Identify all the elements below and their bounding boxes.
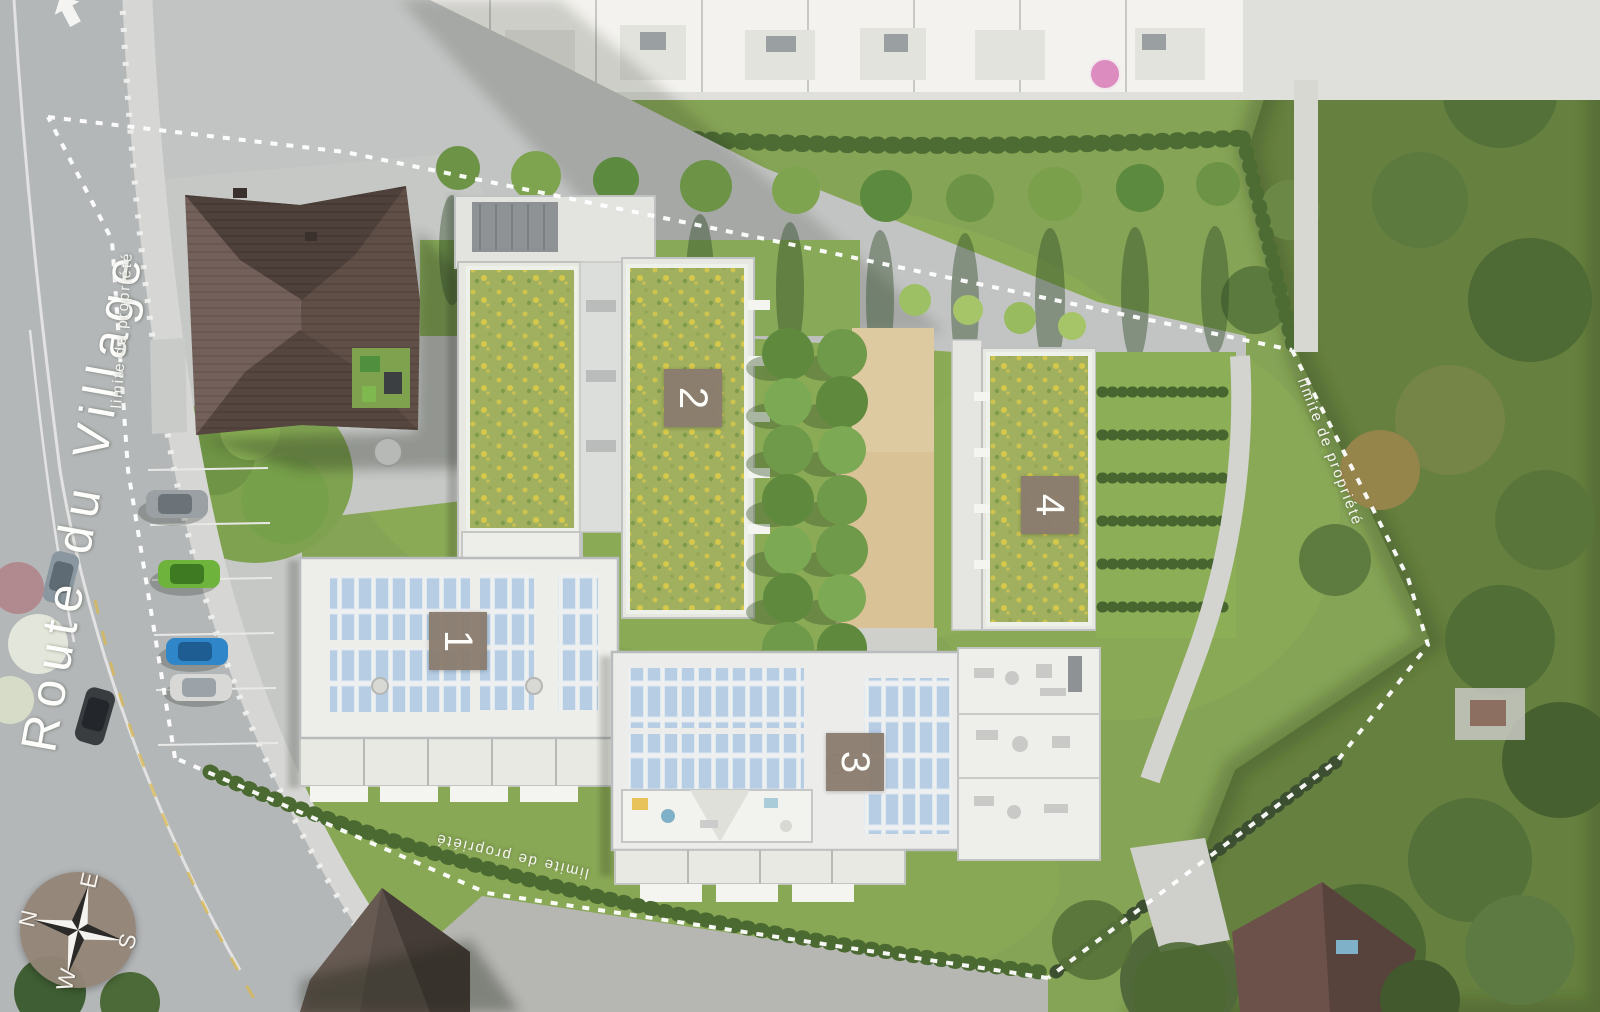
solar-array <box>330 648 470 712</box>
solar-array <box>330 576 470 640</box>
solar-array <box>558 574 598 710</box>
parked-car <box>150 560 220 596</box>
green-roof <box>628 266 746 612</box>
parked-car <box>138 490 208 526</box>
parked-car <box>158 638 228 672</box>
solar-array <box>864 678 952 834</box>
footpath <box>1294 80 1318 352</box>
aerial-render <box>0 0 1600 1012</box>
pink-umbrella <box>1090 59 1120 89</box>
blossom-tree <box>8 614 68 674</box>
manhole <box>374 438 402 466</box>
courtyard <box>746 328 937 675</box>
green-roof <box>468 268 576 530</box>
parked-car <box>164 674 232 707</box>
green-roof <box>988 354 1090 624</box>
solar-array <box>628 668 804 728</box>
solar-array <box>628 734 804 796</box>
terrace-block <box>958 648 1100 860</box>
building-1 <box>288 558 618 802</box>
site-plan-image: Route du Village limite de propriété lim… <box>0 0 1600 1012</box>
